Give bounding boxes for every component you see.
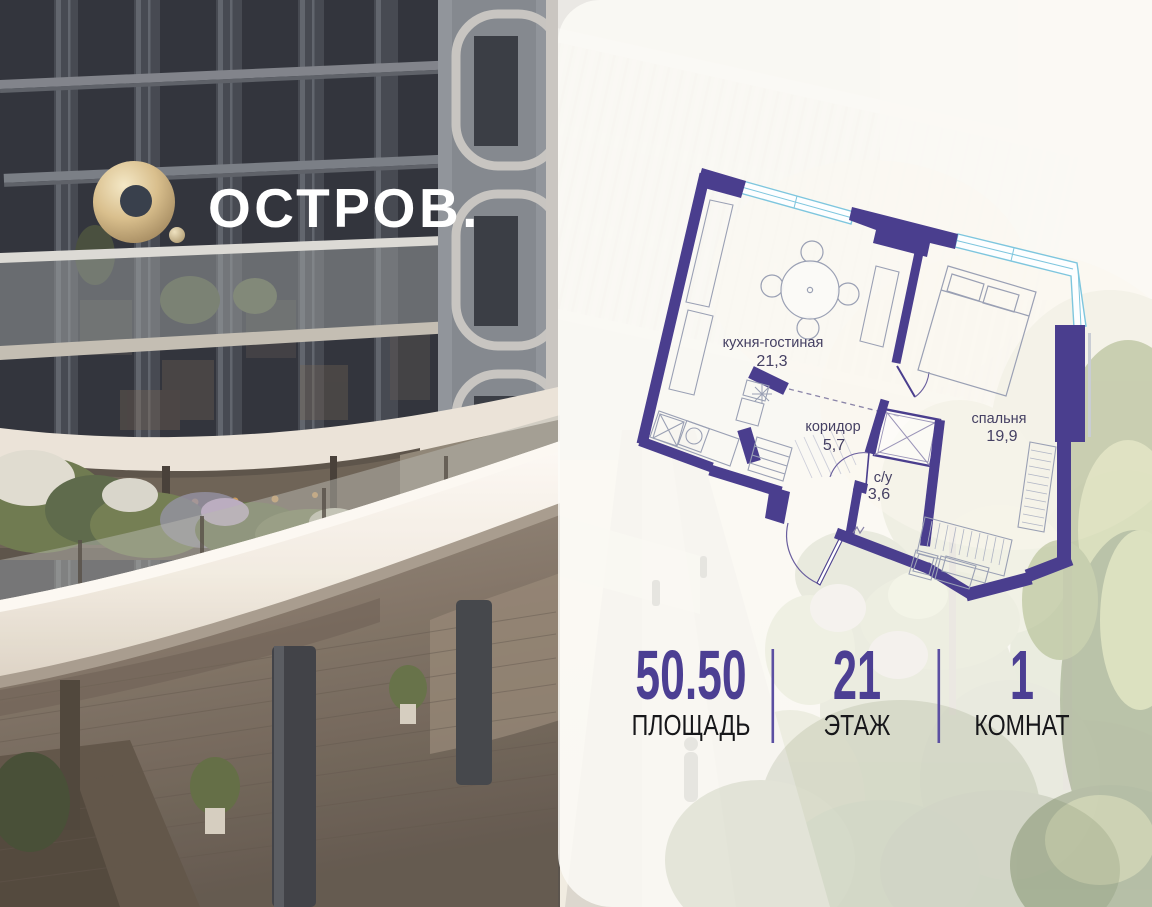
svg-text:ОСТРОВ.: ОСТРОВ. [208, 177, 481, 239]
svg-text:19,9: 19,9 [986, 428, 1017, 445]
svg-text:ПЛОЩАДЬ: ПЛОЩАДЬ [632, 708, 751, 741]
svg-text:21,3: 21,3 [756, 353, 787, 370]
svg-text:кухня-гостиная: кухня-гостиная [723, 335, 824, 351]
svg-text:спальня: спальня [971, 411, 1026, 427]
svg-text:КОМНАТ: КОМНАТ [974, 708, 1069, 741]
svg-text:50.50: 50.50 [635, 637, 746, 715]
svg-text:21: 21 [833, 636, 881, 714]
svg-text:с/у: с/у [874, 470, 893, 486]
svg-text:3,6: 3,6 [868, 486, 890, 503]
svg-text:5,7: 5,7 [823, 437, 845, 454]
svg-text:ЭТАЖ: ЭТАЖ [824, 708, 891, 741]
svg-text:1: 1 [1010, 636, 1034, 714]
svg-text:коридор: коридор [805, 419, 860, 435]
